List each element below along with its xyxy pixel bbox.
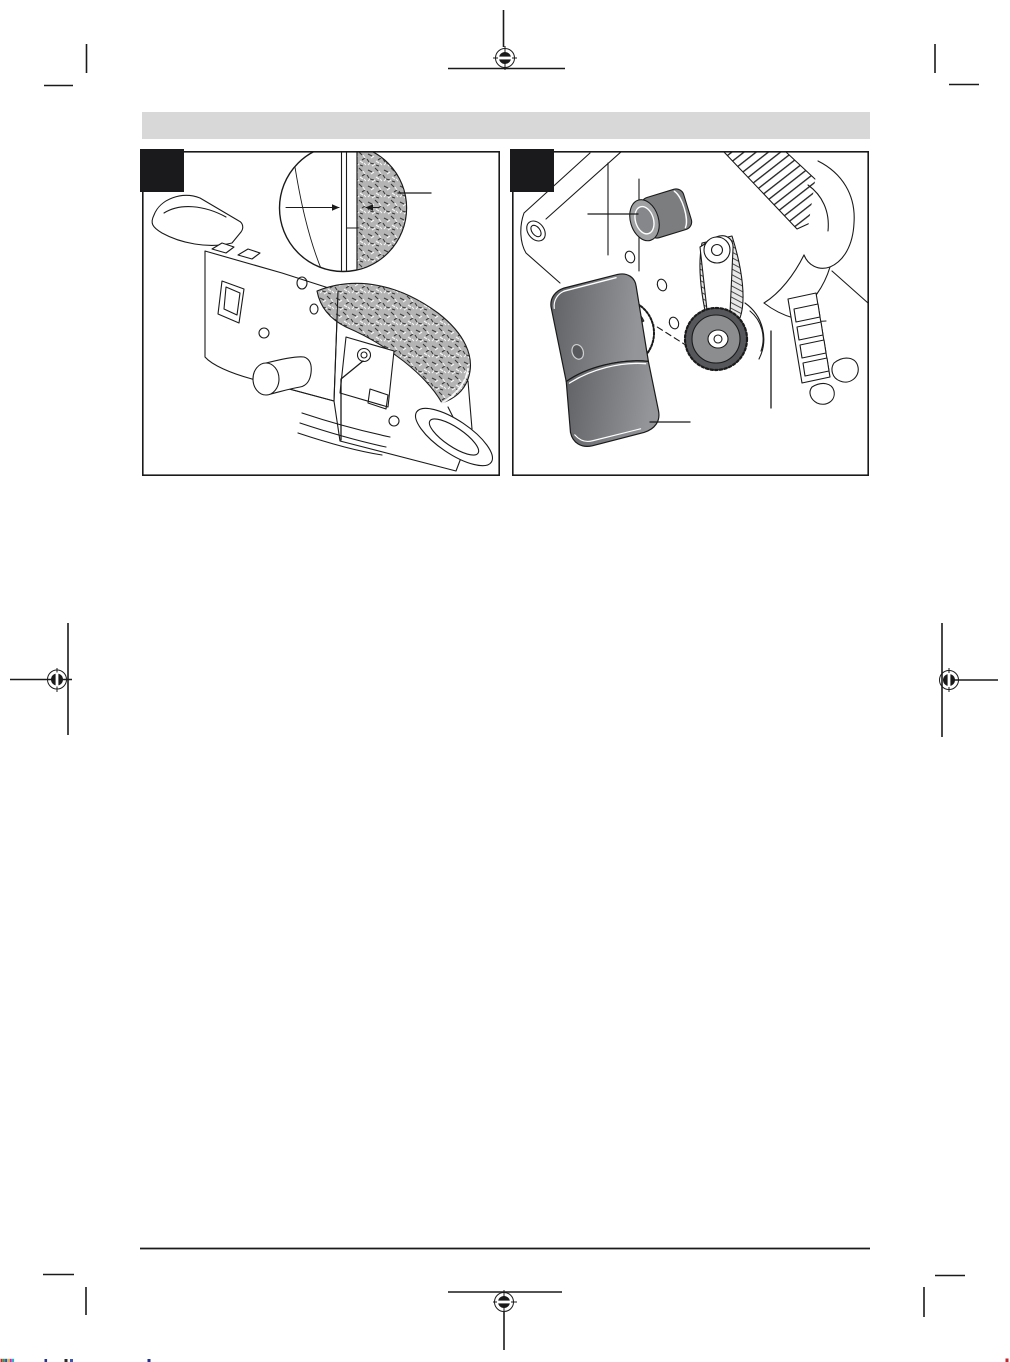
figure-cover-removed bbox=[512, 151, 869, 476]
hook bbox=[810, 384, 834, 405]
color-fragment bbox=[1006, 1359, 1009, 1362]
manual-page bbox=[0, 0, 1010, 1362]
registration-mark-bottom-icon bbox=[448, 1290, 562, 1350]
figure-belt-tracking bbox=[142, 151, 500, 476]
idler-pulley bbox=[704, 237, 730, 263]
section-header-bar bbox=[142, 112, 870, 139]
hook bbox=[832, 358, 858, 382]
color-bar-fragments bbox=[1, 1359, 1009, 1362]
registration-mark-top-icon bbox=[448, 10, 565, 70]
figure-tag-square bbox=[510, 149, 554, 192]
registration-mark-left-icon bbox=[10, 623, 72, 735]
figure-tag-square bbox=[140, 149, 184, 192]
registration-mark-right-icon bbox=[940, 623, 999, 737]
